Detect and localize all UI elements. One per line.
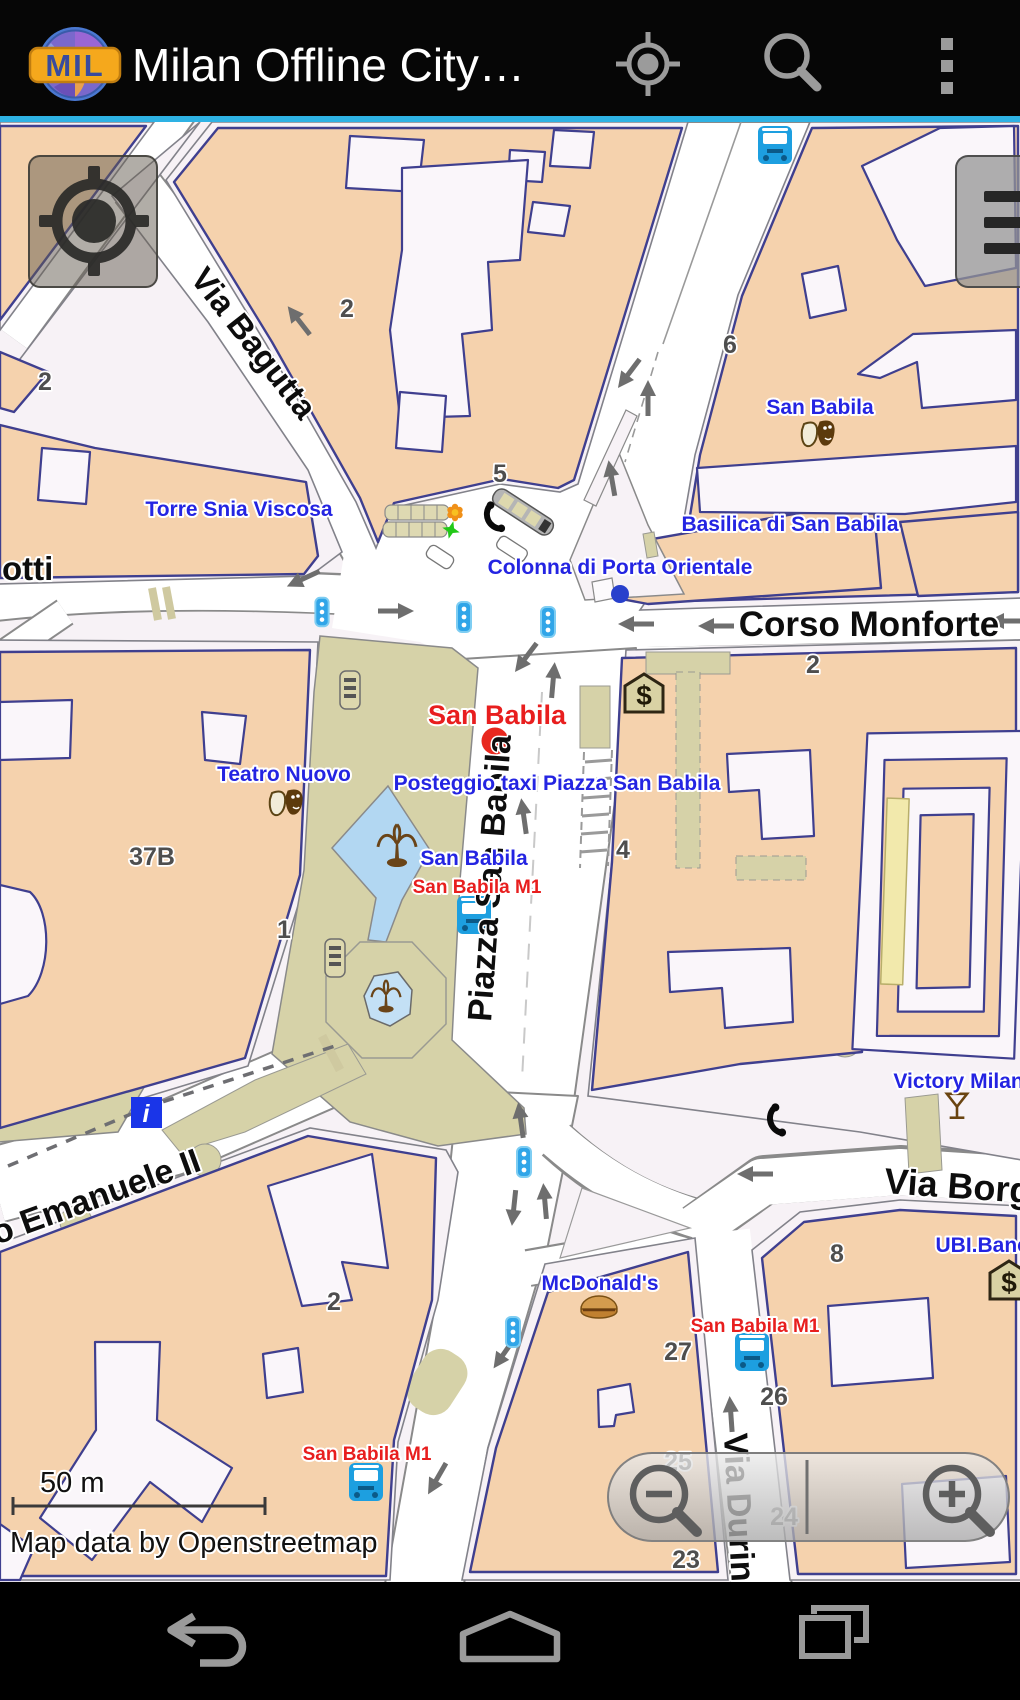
svg-text:2: 2 bbox=[340, 295, 354, 323]
svg-text:8: 8 bbox=[830, 1240, 844, 1268]
svg-text:Teatro Nuovo: Teatro Nuovo bbox=[217, 763, 351, 786]
svg-text:6: 6 bbox=[723, 331, 737, 359]
svg-text:37B: 37B bbox=[129, 843, 175, 871]
svg-text:50 m: 50 m bbox=[40, 1467, 104, 1499]
svg-text:23: 23 bbox=[672, 1546, 700, 1574]
svg-text:4: 4 bbox=[616, 836, 630, 864]
svg-text:Map data by Openstreetmap: Map data by Openstreetmap bbox=[10, 1527, 378, 1559]
svg-text:i: i bbox=[143, 1100, 151, 1128]
svg-text:otti: otti bbox=[2, 550, 53, 587]
svg-text:San Babila: San Babila bbox=[428, 700, 567, 730]
svg-text:Torre Snia Viscosa: Torre Snia Viscosa bbox=[145, 498, 332, 521]
svg-text:McDonald's: McDonald's bbox=[541, 1272, 658, 1295]
svg-text:MIL: MIL bbox=[45, 48, 104, 83]
svg-text:San Babila M1: San Babila M1 bbox=[413, 877, 542, 898]
svg-text:San Babila: San Babila bbox=[766, 396, 874, 419]
svg-text:Victory Milano: Victory Milano bbox=[893, 1070, 1020, 1093]
svg-text:2: 2 bbox=[327, 1288, 341, 1316]
svg-text:2: 2 bbox=[806, 651, 820, 679]
svg-text:26: 26 bbox=[760, 1383, 788, 1411]
svg-text:Posteggio taxi Piazza San Babi: Posteggio taxi Piazza San Babila bbox=[394, 772, 721, 795]
svg-text:San Babila: San Babila bbox=[420, 847, 528, 870]
svg-text:Colonna di Porta Orientale: Colonna di Porta Orientale bbox=[488, 556, 753, 579]
svg-text:San Babila M1: San Babila M1 bbox=[303, 1444, 432, 1465]
svg-text:Corso Monforte: Corso Monforte bbox=[739, 605, 1000, 644]
svg-text:UBI.Banca: UBI.Banca bbox=[935, 1234, 1020, 1257]
svg-text:2: 2 bbox=[38, 368, 52, 396]
svg-text:San Babila M1: San Babila M1 bbox=[691, 1316, 820, 1337]
svg-text:1: 1 bbox=[277, 916, 291, 944]
svg-text:Basilica di San Babila: Basilica di San Babila bbox=[681, 513, 898, 536]
svg-text:5: 5 bbox=[493, 460, 507, 488]
svg-text:27: 27 bbox=[664, 1338, 692, 1366]
